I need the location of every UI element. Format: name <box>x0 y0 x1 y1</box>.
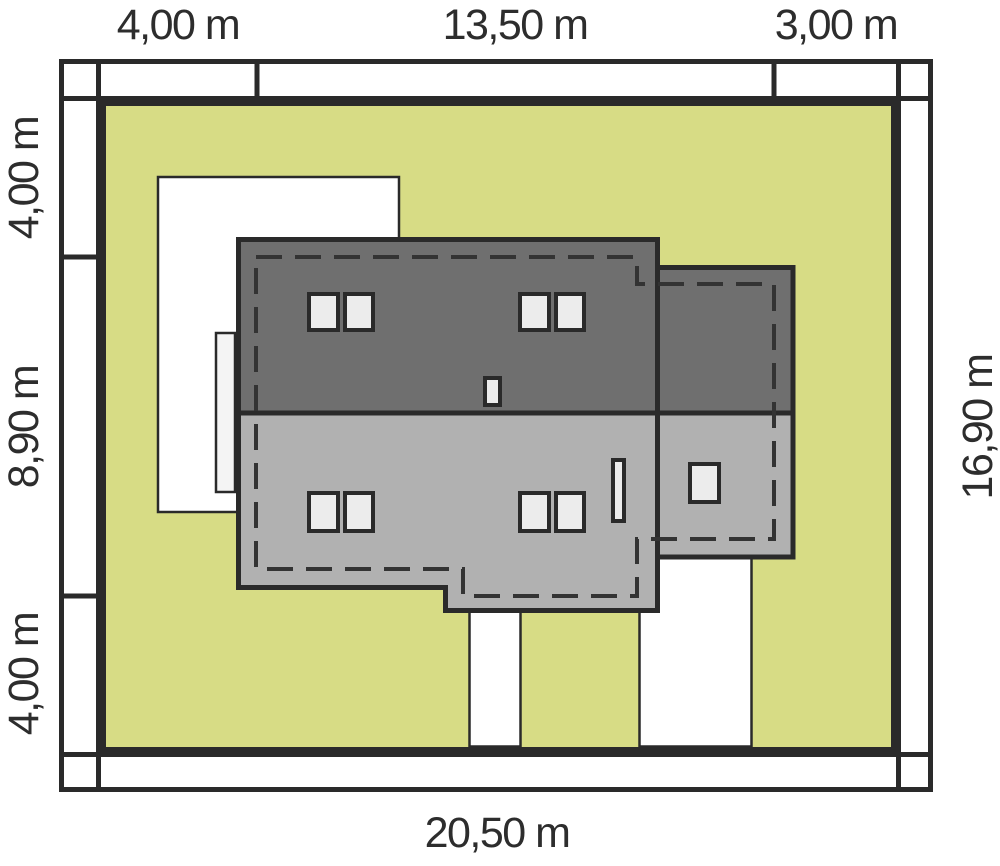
roof-window <box>520 294 549 330</box>
dim-label-left-top-setback: 4,00 m <box>0 117 48 239</box>
dim-label-plot-width: 20,50 m <box>425 809 570 857</box>
roof-window <box>345 294 373 330</box>
roof-window <box>556 294 584 330</box>
dim-label-left-house-depth: 8,90 m <box>0 366 48 488</box>
house-roof-dark <box>239 240 658 414</box>
tall-roof-window <box>613 460 624 521</box>
roof-window <box>345 493 373 531</box>
dim-label-left-bottom-setback: 4,00 m <box>0 613 48 735</box>
roof-window <box>556 493 584 531</box>
roof-window <box>520 493 549 531</box>
entrance-path <box>470 600 521 747</box>
side-terrace <box>216 333 235 492</box>
site-plan-svg: 4,00 m 13,50 m 3,00 m 4,00 m 8,90 m 4,00… <box>0 0 1000 866</box>
site-plan-canvas: 4,00 m 13,50 m 3,00 m 4,00 m 8,90 m 4,00… <box>0 0 1000 866</box>
dim-label-top-left-setback: 4,00 m <box>117 1 239 49</box>
dim-label-plot-depth: 16,90 m <box>954 355 1000 500</box>
chimney <box>485 378 500 405</box>
house-roof-light <box>239 413 658 611</box>
dim-label-top-house-span: 13,50 m <box>443 1 588 49</box>
roof-window <box>309 294 338 330</box>
dim-label-top-right-setback: 3,00 m <box>775 1 897 49</box>
roof-window <box>309 493 338 531</box>
garage-roof-window <box>690 464 719 502</box>
